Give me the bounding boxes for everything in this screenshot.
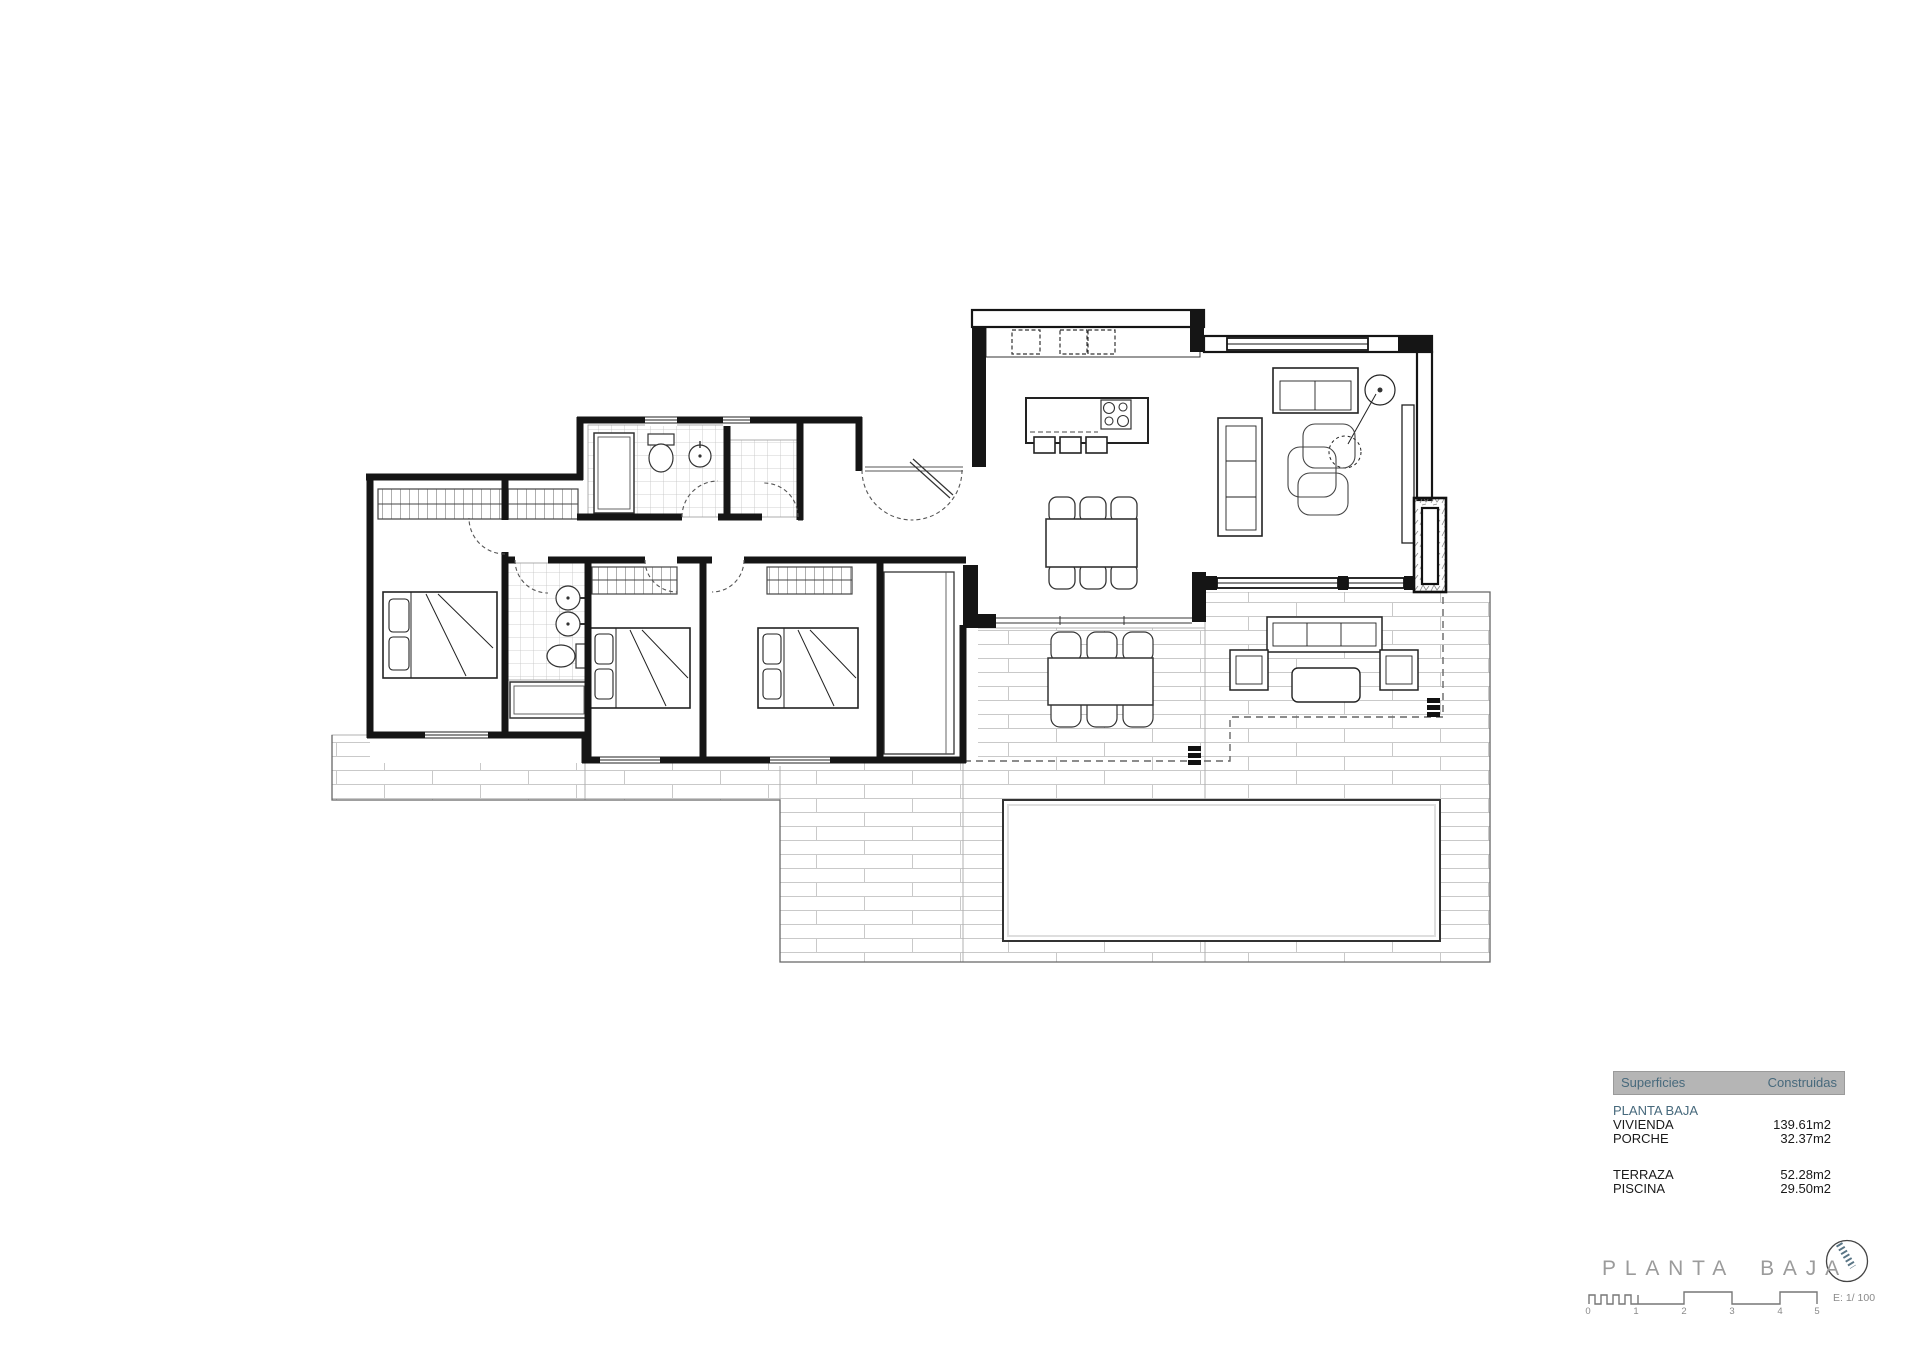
surface-value: 52.28m2 xyxy=(1780,1168,1831,1182)
table-row: PORCHE 32.37m2 xyxy=(1613,1132,1831,1146)
bed-master xyxy=(383,592,497,678)
window xyxy=(770,754,830,766)
surface-value: 139.61m2 xyxy=(1773,1118,1831,1132)
scale-tick-label: 5 xyxy=(1814,1306,1819,1317)
scale-tick-label: 1 xyxy=(1633,1306,1638,1317)
stool xyxy=(1060,437,1081,453)
wardrobe xyxy=(592,567,677,594)
surfaces-header-col2: Construidas xyxy=(1768,1076,1837,1090)
shower-tray xyxy=(510,682,588,718)
scale-label: E: 1/ 100 xyxy=(1833,1292,1875,1304)
cooktop xyxy=(1101,400,1131,429)
stool xyxy=(1034,437,1055,453)
surface-value: 29.50m2 xyxy=(1780,1182,1831,1196)
wardrobe xyxy=(767,567,852,594)
scale-tick-label: 2 xyxy=(1681,1306,1686,1317)
shower-tray xyxy=(594,433,634,513)
surfaces-table: Superficies Construidas PLANTA BAJA VIVI… xyxy=(1613,1071,1845,1196)
table-row: TERRAZA 52.28m2 xyxy=(1613,1168,1831,1182)
ensuite-bathroom xyxy=(508,563,588,718)
drawing-sheet: 0 1 2 3 4 5 E: 1/ 100 Superficies Constr… xyxy=(0,0,1920,1357)
downspout-icon xyxy=(1427,698,1440,717)
sofa xyxy=(1218,418,1262,536)
table-row: VIVIENDA 139.61m2 xyxy=(1613,1118,1831,1132)
window xyxy=(1217,578,1338,588)
page-title: PLANTA BAJA xyxy=(1602,1257,1848,1281)
bed-3 xyxy=(758,628,858,708)
scale-tick-label: 0 xyxy=(1585,1306,1590,1317)
kitchen-counter xyxy=(986,327,1200,357)
fireplace xyxy=(1414,498,1446,592)
surface-value: 32.37m2 xyxy=(1780,1132,1831,1146)
surfaces-table-header: Superficies Construidas xyxy=(1613,1071,1845,1095)
bathroom-top xyxy=(588,425,727,517)
wall xyxy=(972,310,986,467)
pool xyxy=(1003,800,1440,941)
outdoor-sofa xyxy=(1267,617,1382,652)
window xyxy=(1348,578,1404,588)
scale-tick-label: 3 xyxy=(1729,1306,1734,1317)
window xyxy=(425,729,488,741)
window xyxy=(1227,338,1368,350)
dining-table xyxy=(1048,658,1153,705)
column xyxy=(963,565,978,628)
surface-label: TERRAZA xyxy=(1613,1168,1674,1182)
toilet xyxy=(648,434,674,472)
surface-label: VIVIENDA xyxy=(1613,1118,1674,1132)
surface-label: PORCHE xyxy=(1613,1132,1669,1146)
column xyxy=(1192,572,1206,622)
loveseat xyxy=(1273,368,1358,413)
window xyxy=(723,414,750,426)
utility-room xyxy=(730,440,800,517)
stool xyxy=(1086,437,1107,453)
surfaces-header-col1: Superficies xyxy=(1621,1076,1685,1090)
bed-2 xyxy=(590,628,690,708)
window xyxy=(600,754,660,766)
dining-set-indoor xyxy=(1046,497,1137,589)
coffee-table xyxy=(1292,668,1360,702)
downspout-icon xyxy=(1188,746,1201,765)
dining-table xyxy=(1046,519,1137,567)
wardrobe xyxy=(378,489,578,519)
toilet xyxy=(547,644,587,668)
scale-bar: 0 1 2 3 4 5 E: 1/ 100 xyxy=(1585,1292,1875,1317)
window xyxy=(645,414,677,426)
surfaces-table-body: PLANTA BAJA VIVIENDA 139.61m2 PORCHE 32.… xyxy=(1613,1095,1838,1196)
table-row: PISCINA 29.50m2 xyxy=(1613,1182,1831,1196)
armchair xyxy=(1380,650,1418,690)
storage-room xyxy=(884,572,954,754)
tv-unit xyxy=(1402,405,1414,543)
table-spacer xyxy=(1613,1146,1831,1168)
surfaces-section-title: PLANTA BAJA xyxy=(1613,1104,1831,1118)
dining-set-outdoor xyxy=(1048,632,1153,727)
surface-label: PISCINA xyxy=(1613,1182,1665,1196)
armchair xyxy=(1230,650,1268,690)
scale-tick-label: 4 xyxy=(1777,1306,1782,1317)
